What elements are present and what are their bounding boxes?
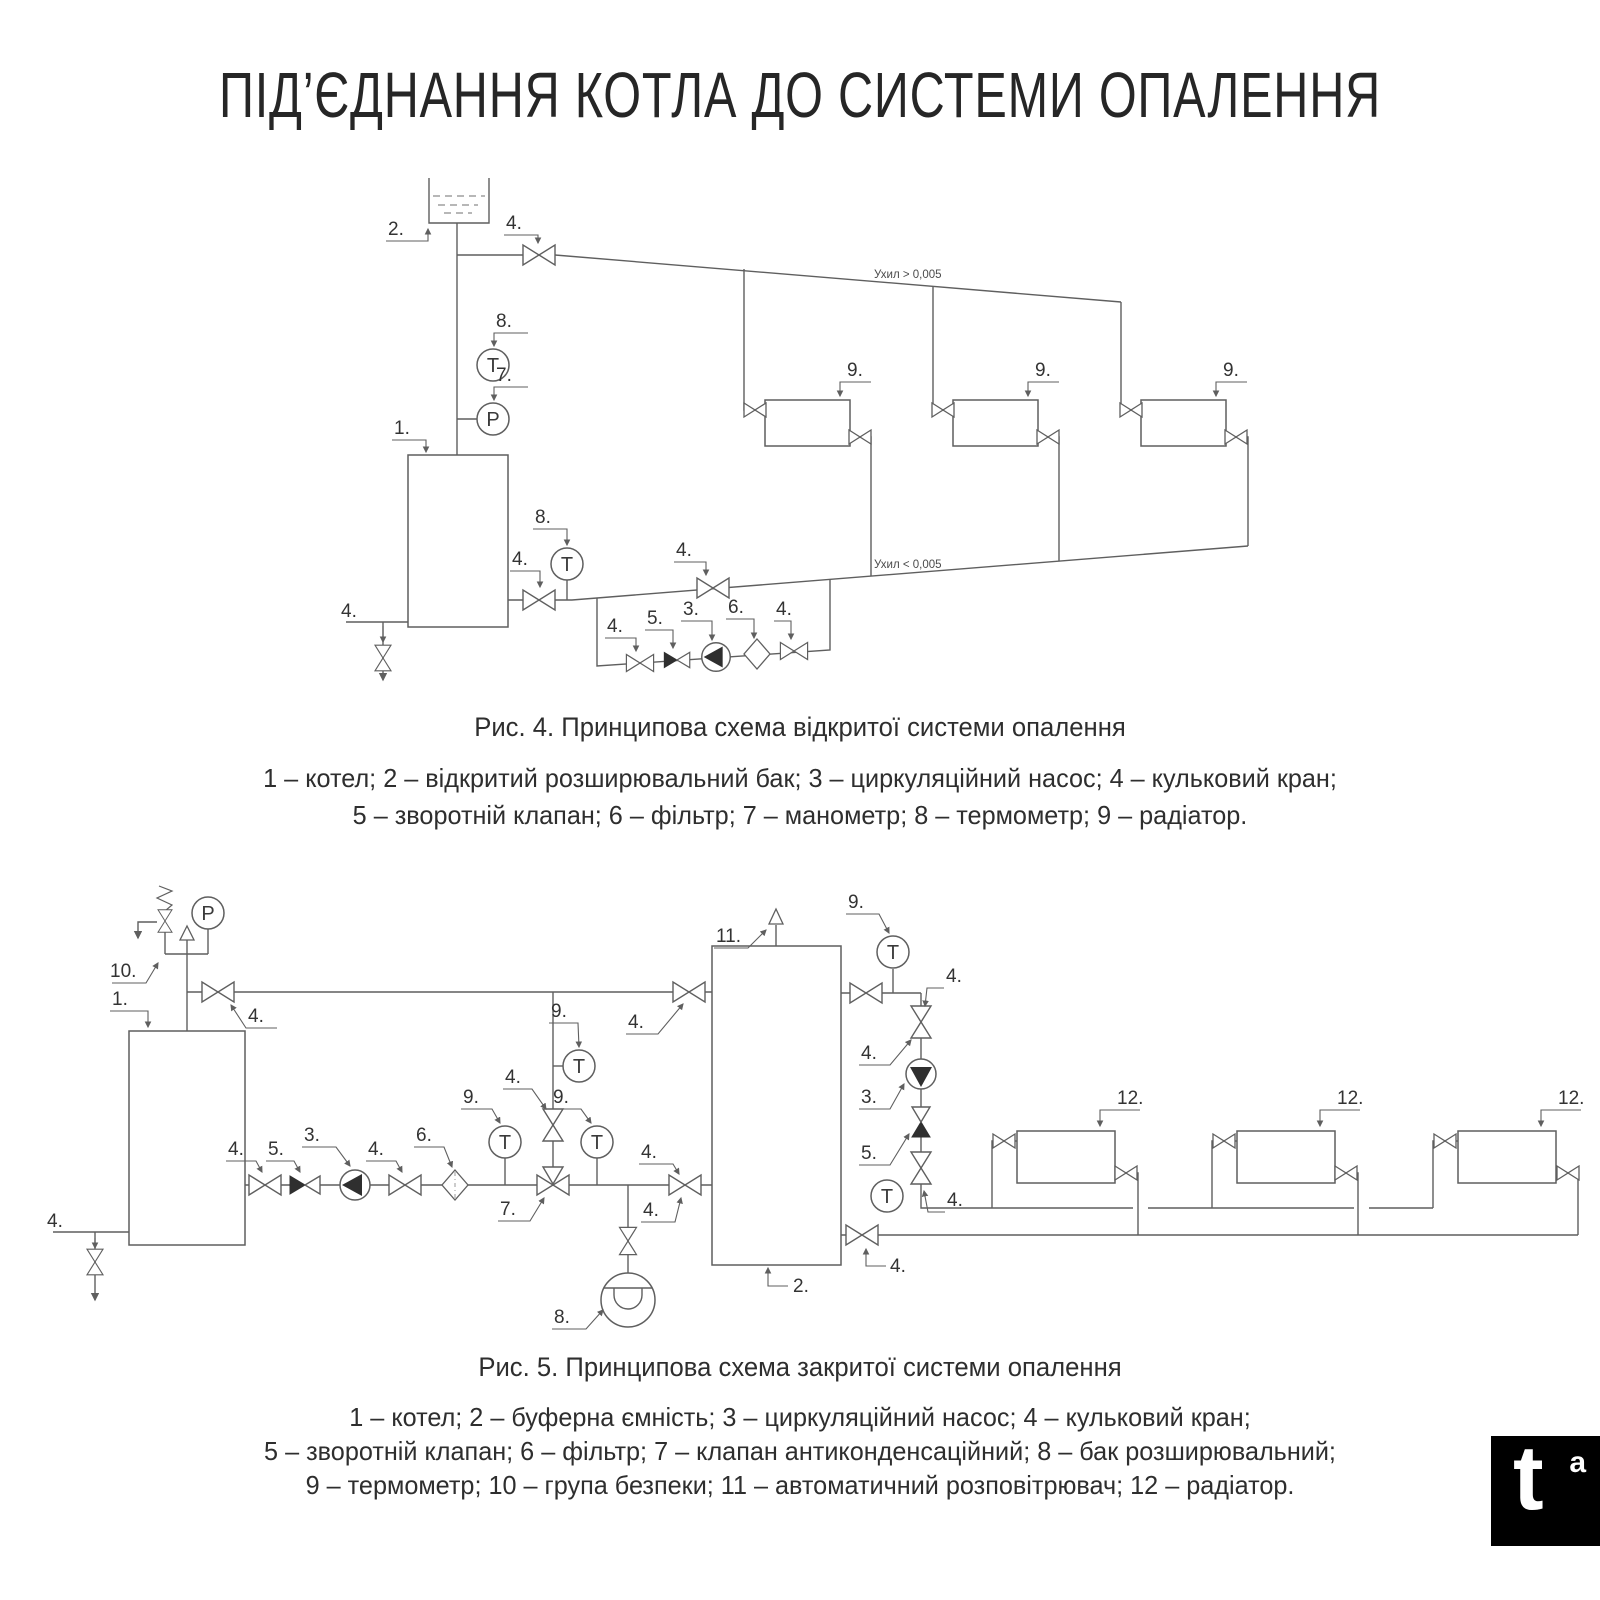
spring-zigzag — [157, 886, 172, 911]
circulation-pump — [340, 1170, 370, 1200]
check-valve — [912, 1107, 930, 1137]
radiator — [765, 400, 850, 446]
expansion-vessel-body — [601, 1273, 655, 1327]
radiator3-riser — [1433, 1141, 1458, 1208]
radiator2-supply-drop — [933, 287, 953, 410]
svg-text:5.: 5. — [647, 608, 663, 629]
ball-valve — [249, 1175, 281, 1195]
radiator1-return-drop — [1115, 1173, 1138, 1235]
ball-valve — [697, 578, 729, 598]
radiator1-return-drop — [850, 437, 871, 576]
radiator — [1237, 1131, 1335, 1183]
radiator-valve — [849, 430, 871, 444]
svg-text:9.: 9. — [553, 1087, 569, 1108]
svg-text:2.: 2. — [388, 219, 404, 240]
filter — [744, 639, 770, 669]
boiler — [408, 455, 508, 627]
svg-text:4.: 4. — [676, 540, 692, 561]
radiator-valve — [1120, 403, 1142, 417]
radiator-valve — [1213, 1134, 1235, 1148]
svg-text:8.: 8. — [496, 311, 512, 332]
ball-valve — [202, 982, 234, 1002]
radiator-valve — [1037, 430, 1059, 444]
svg-text:9.: 9. — [848, 892, 864, 913]
ball-valve — [673, 982, 705, 1002]
page-title: ПІД’ЄДНАННЯ КОТЛА ДО СИСТЕМИ ОПАЛЕННЯ — [192, 58, 1408, 132]
svg-text:3.: 3. — [683, 599, 699, 620]
radiator2-return-drop — [1335, 1173, 1358, 1235]
radiator — [1458, 1131, 1556, 1183]
supply-main-pipe — [457, 255, 1121, 302]
pressure-gauge — [477, 403, 509, 435]
buffer-tank — [712, 946, 841, 1265]
svg-text:12.: 12. — [1337, 1088, 1363, 1109]
drain-valve — [87, 1249, 103, 1275]
return-main-pipe — [508, 546, 1248, 600]
poster-page: { "title": "ПІД’ЄДНАННЯ КОТЛА ДО СИСТЕМИ… — [0, 0, 1600, 1600]
thermometer — [581, 1126, 613, 1158]
safety-relief-valve — [158, 910, 172, 932]
svg-text:1.: 1. — [112, 989, 128, 1010]
svg-text:4.: 4. — [368, 1139, 384, 1160]
radiator — [1017, 1131, 1115, 1183]
svg-text:12.: 12. — [1558, 1088, 1584, 1109]
svg-text:4.: 4. — [641, 1142, 657, 1163]
svg-text:4.: 4. — [890, 1256, 906, 1277]
thermometer — [871, 1180, 903, 1212]
thermometer — [877, 936, 909, 968]
radiator-valve — [1335, 1166, 1357, 1180]
air-vent-icon — [180, 926, 194, 940]
pressure-gauge — [192, 897, 224, 929]
radiator2-return-drop — [1038, 437, 1059, 561]
svg-text:12.: 12. — [1117, 1088, 1143, 1109]
filter — [442, 1170, 468, 1200]
svg-text:9.: 9. — [463, 1087, 479, 1108]
radiator1-riser — [992, 1141, 1017, 1208]
svg-text:8.: 8. — [535, 507, 551, 528]
slope-annotation: Ухил > 0,005 — [874, 269, 942, 281]
svg-text:8.: 8. — [554, 1307, 570, 1328]
svg-text:7.: 7. — [496, 365, 512, 386]
svg-text:4.: 4. — [248, 1006, 264, 1027]
radiator-valve — [1557, 1166, 1579, 1180]
drain-valve — [375, 645, 391, 671]
radiator-valve — [1225, 430, 1247, 444]
svg-text:4.: 4. — [947, 1190, 963, 1211]
svg-text:4.: 4. — [341, 601, 357, 622]
ball-valve — [626, 655, 653, 672]
ball-valve — [911, 1152, 931, 1184]
svg-text:4.: 4. — [512, 549, 528, 570]
svg-text:4.: 4. — [946, 966, 962, 987]
figure5-caption: Рис. 5. Принципова схема закритої систем… — [40, 1352, 1560, 1383]
svg-text:10.: 10. — [110, 961, 136, 982]
legend-line: 5 – зворотній клапан; 6 – фільтр; 7 – кл… — [24, 1434, 1576, 1468]
svg-text:9.: 9. — [1035, 360, 1051, 381]
thermometer — [489, 1126, 521, 1158]
ball-valve — [780, 643, 807, 660]
ball-valve — [911, 1006, 931, 1038]
svg-text:4.: 4. — [228, 1139, 244, 1160]
expansion-vessel — [601, 1273, 655, 1327]
relief-discharge-pipe — [138, 922, 157, 938]
circulation-pump — [906, 1059, 936, 1089]
ball-valve — [523, 245, 555, 265]
svg-text:5.: 5. — [861, 1143, 877, 1164]
thermometer — [563, 1050, 595, 1082]
radiator-valve — [744, 403, 766, 417]
svg-text:4.: 4. — [628, 1012, 644, 1033]
figure4-diagram: 1. 2. 4. 8. 7. 8. 4. 4. 4. 5. 3. 6. 4. 9… — [330, 168, 1260, 703]
check-valve — [290, 1176, 320, 1194]
svg-text:3.: 3. — [304, 1125, 320, 1146]
radiator1-supply-drop — [744, 269, 765, 410]
slope-annotation: Ухил < 0,005 — [874, 559, 942, 571]
svg-text:4.: 4. — [47, 1211, 63, 1232]
svg-text:5.: 5. — [268, 1139, 284, 1160]
radiator3-supply-drop — [1121, 302, 1141, 410]
open-expansion-tank — [429, 178, 489, 223]
auto-air-vent-icon — [769, 909, 783, 924]
svg-text:9.: 9. — [551, 1001, 567, 1022]
svg-text:2.: 2. — [793, 1276, 809, 1297]
anticondensation-valve — [537, 1167, 569, 1195]
figure4-caption: Рис. 4. Принципова схема відкритої систе… — [40, 712, 1560, 743]
svg-text:6.: 6. — [416, 1125, 432, 1146]
ball-valve — [389, 1175, 421, 1195]
figure5-legend: 1 – котел; 2 – буферна ємність; 3 – цирк… — [24, 1400, 1576, 1502]
boiler — [129, 1031, 245, 1245]
radiator-valve — [932, 403, 954, 417]
legend-line: 5 – зворотній клапан; 6 – фільтр; 7 – ма… — [24, 797, 1576, 834]
ball-valve — [669, 1175, 701, 1195]
svg-text:9.: 9. — [847, 360, 863, 381]
ball-valve — [523, 590, 555, 610]
svg-text:7.: 7. — [500, 1199, 516, 1220]
ball-valve — [846, 1225, 878, 1245]
svg-text:3.: 3. — [861, 1087, 877, 1108]
svg-text:4.: 4. — [506, 213, 522, 234]
radiator-valve — [1115, 1166, 1137, 1180]
radiator2-riser — [1212, 1141, 1237, 1208]
logo-superscript: a — [1569, 1446, 1586, 1480]
svg-text:4.: 4. — [861, 1043, 877, 1064]
figure4-legend: 1 – котел; 2 – відкритий розширювальний … — [24, 760, 1576, 834]
svg-text:11.: 11. — [716, 926, 741, 947]
ball-valve — [850, 983, 882, 1003]
svg-text:4.: 4. — [776, 599, 792, 620]
ball-valve — [620, 1227, 637, 1254]
check-valve — [664, 652, 690, 667]
radiator — [1141, 400, 1226, 446]
radiator3-return-drop — [1226, 437, 1248, 546]
logo-letter: t — [1513, 1426, 1544, 1531]
radiator-valve — [993, 1134, 1015, 1148]
svg-text:4.: 4. — [607, 616, 623, 637]
svg-text:6.: 6. — [728, 597, 744, 618]
radiator3-return-drop — [1556, 1173, 1578, 1235]
svg-text:4.: 4. — [643, 1200, 659, 1221]
svg-text:4.: 4. — [505, 1067, 521, 1088]
legend-line: 9 – термометр; 10 – група безпеки; 11 – … — [24, 1468, 1576, 1502]
circulation-pump — [702, 643, 731, 672]
thermometer — [551, 548, 583, 580]
brand-logo: t a — [1491, 1436, 1600, 1546]
legend-line: 1 – котел; 2 – буферна ємність; 3 – цирк… — [24, 1400, 1576, 1434]
svg-text:1.: 1. — [394, 418, 410, 439]
svg-text:9.: 9. — [1223, 360, 1239, 381]
ball-valve — [543, 1109, 563, 1141]
radiator — [953, 400, 1038, 446]
radiator-valve — [1434, 1134, 1456, 1148]
legend-line: 1 – котел; 2 – відкритий розширювальний … — [24, 760, 1576, 797]
figure5-diagram: 10. 1. 4. 4. 4. 5. 3. 4. 6. 9. 7. 4. 9. … — [40, 875, 1600, 1335]
